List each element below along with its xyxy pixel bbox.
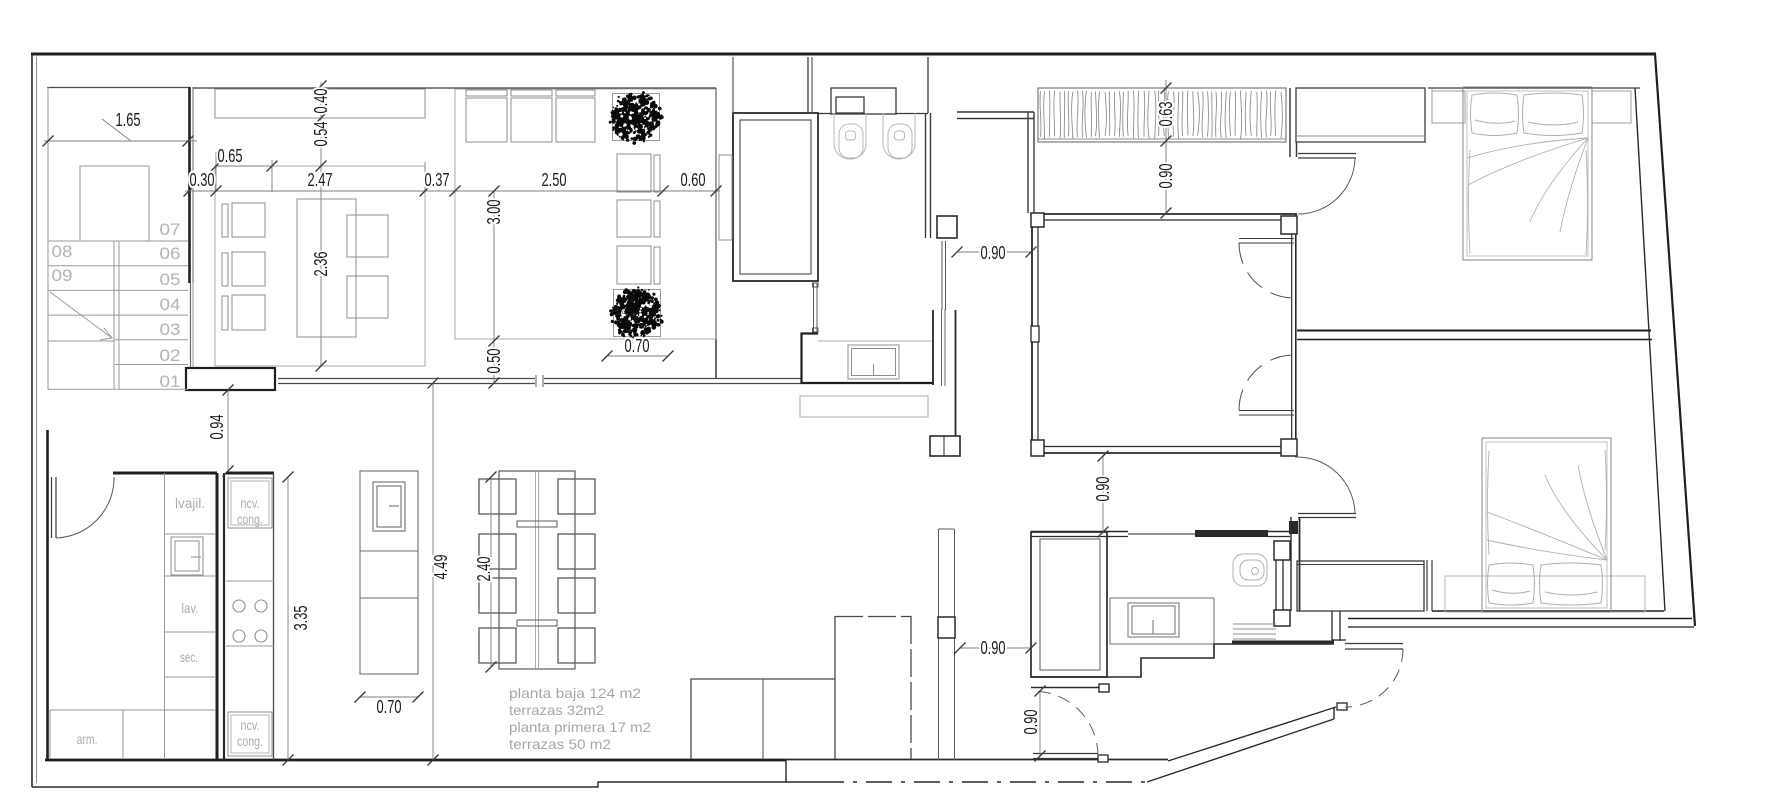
svg-text:0.37: 0.37 [425, 170, 450, 190]
svg-text:04: 04 [160, 295, 181, 314]
svg-text:0.50: 0.50 [484, 349, 504, 374]
svg-text:2.36: 2.36 [311, 252, 331, 277]
svg-text:0.63: 0.63 [1156, 102, 1176, 127]
svg-text:0.65: 0.65 [218, 146, 243, 166]
svg-text:2.50: 2.50 [542, 170, 567, 190]
svg-text:2.40: 2.40 [474, 557, 494, 582]
svg-text:0.30: 0.30 [190, 170, 215, 190]
svg-text:terrazas 32m2: terrazas 32m2 [509, 702, 604, 718]
svg-text:ncv.: ncv. [241, 496, 260, 511]
svg-text:0.60: 0.60 [681, 170, 706, 190]
svg-text:03: 03 [160, 320, 181, 339]
svg-text:09: 09 [52, 266, 73, 285]
svg-text:lav.: lav. [182, 601, 199, 616]
svg-text:ncv.: ncv. [241, 718, 260, 733]
svg-text:08: 08 [52, 242, 73, 261]
svg-text:0.90: 0.90 [981, 243, 1006, 263]
svg-text:0.90: 0.90 [1093, 477, 1113, 502]
svg-text:sec.: sec. [180, 650, 198, 665]
svg-text:cong.: cong. [237, 734, 263, 749]
svg-text:07: 07 [160, 220, 181, 239]
svg-text:terrazas 50 m2: terrazas 50 m2 [509, 736, 611, 752]
svg-text:05: 05 [160, 270, 181, 289]
svg-text:0.70: 0.70 [377, 697, 402, 717]
svg-text:0.90: 0.90 [1156, 164, 1176, 189]
svg-text:01: 01 [160, 372, 181, 391]
svg-text:cong.: cong. [237, 512, 263, 527]
svg-text:06: 06 [160, 244, 181, 263]
svg-text:0.40: 0.40 [311, 89, 331, 114]
svg-text:1.65: 1.65 [116, 110, 141, 130]
svg-text:0.70: 0.70 [625, 336, 650, 356]
svg-text:0.54: 0.54 [311, 122, 331, 147]
svg-text:arm.: arm. [77, 732, 98, 747]
svg-text:planta baja 124 m2: planta baja 124 m2 [509, 685, 641, 701]
svg-text:3.35: 3.35 [291, 606, 311, 631]
svg-text:lvajil.: lvajil. [175, 496, 205, 511]
svg-text:3.00: 3.00 [484, 200, 504, 225]
svg-text:0.90: 0.90 [1021, 710, 1041, 735]
svg-text:02: 02 [160, 346, 181, 365]
svg-text:4.49: 4.49 [431, 555, 451, 580]
svg-text:planta primera 17 m2: planta primera 17 m2 [509, 719, 651, 735]
svg-text:2.47: 2.47 [308, 170, 333, 190]
svg-text:0.90: 0.90 [981, 638, 1006, 658]
svg-text:0.94: 0.94 [207, 415, 227, 440]
